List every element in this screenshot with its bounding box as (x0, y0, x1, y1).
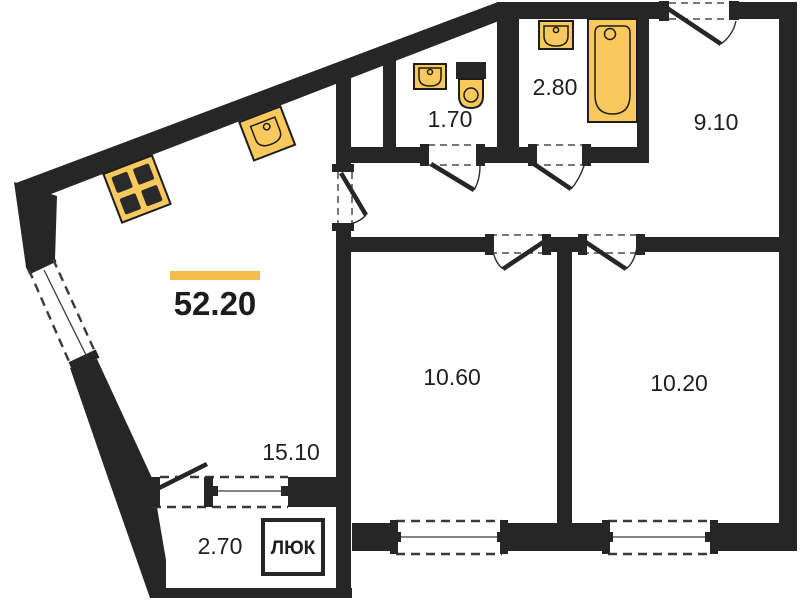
window-nub (394, 532, 401, 542)
wall-left-upper (14, 182, 57, 267)
window-nub (705, 532, 712, 542)
door-jamb (636, 234, 645, 255)
bathroom-door-leaf (534, 164, 571, 189)
door-jamb (729, 1, 739, 20)
entrance-door (659, 1, 739, 44)
toilet-tank (456, 62, 486, 79)
wall-bedrooms-top-3 (640, 237, 779, 252)
door-swing-arc (721, 21, 736, 44)
wall-bottom-middle (502, 523, 608, 551)
toilet-icon (456, 62, 486, 108)
bedroom-2-door-leaf (584, 241, 626, 269)
bathroom-door (528, 144, 591, 189)
door-jamb (332, 164, 354, 172)
window-living-left (26, 254, 100, 371)
hatch-label: ЛЮК (271, 538, 316, 559)
hatch: ЛЮК (263, 520, 323, 574)
floorplan-page: ЛЮК 52.20 15.10 10.60 10.20 9.10 2.80 1.… (0, 0, 801, 600)
room-area-label-hallway: 9.10 (694, 109, 739, 135)
bath-sink-icon (539, 21, 573, 49)
door-jamb (476, 144, 485, 166)
window-nub (497, 532, 504, 542)
wall-wcbath-bottom-3 (585, 147, 649, 163)
wall-bottom-right (712, 523, 797, 551)
door-jamb (420, 144, 429, 166)
door-swing-arc (626, 246, 637, 269)
wall-top-diagonal (16, 2, 504, 201)
window-nub (281, 486, 288, 496)
wall-top-left-of-entrance (497, 2, 663, 19)
balcony-door-window (150, 464, 288, 507)
wall-central-lower (336, 223, 351, 598)
entrance-door-leaf (664, 6, 721, 44)
bedroom-2-door (578, 234, 645, 269)
bedroom-1-door (485, 234, 551, 269)
bathtub-icon (588, 19, 637, 122)
wall-bath-right (637, 19, 649, 163)
wall-bedrooms-top-1 (351, 237, 490, 252)
room-area-label-bathroom: 2.80 (533, 74, 578, 100)
total-area-label: 52.20 (174, 285, 257, 322)
wall-wcbath-bottom-1 (345, 147, 428, 163)
wall-wc-bath-divider (497, 19, 519, 147)
wall-bottom-left (352, 523, 396, 551)
door-jamb (582, 144, 591, 166)
living-room-door-leaf (341, 173, 366, 215)
wall-bedroom-divider (557, 252, 572, 523)
wc-sink-icon (414, 64, 446, 89)
door-hinge-block (150, 477, 160, 507)
wall-wcbath-bottom-2 (480, 147, 532, 163)
window-bedroom-1 (390, 520, 508, 554)
wall-right (779, 2, 797, 551)
window-nub (606, 532, 613, 542)
room-area-label-wc: 1.70 (428, 106, 473, 132)
total-area-accent-bar (170, 271, 260, 280)
wall-balcony-bottom (155, 588, 352, 598)
wall-balcony-top-chunk (288, 477, 336, 507)
floorplan-drawing: ЛЮК 52.20 15.10 10.60 10.20 9.10 2.80 1.… (0, 0, 801, 600)
window-glass (44, 270, 87, 357)
room-area-label-bedroom-2: 10.20 (650, 370, 708, 396)
room-area-label-balcony: 2.70 (198, 533, 243, 559)
room-area-label-kitchen-living: 15.10 (262, 439, 320, 465)
door-swing-arc (571, 166, 584, 189)
window-bedroom-2 (602, 520, 718, 554)
room-area-label-bedroom-1: 10.60 (423, 364, 481, 390)
wall-bedrooms-top-2 (547, 237, 582, 252)
wc-door (420, 144, 485, 190)
window-nub (211, 486, 218, 496)
bedroom-1-door-leaf (503, 241, 545, 269)
outer-walls (14, 2, 797, 598)
interior-walls (288, 19, 779, 598)
wc-door-leaf (431, 164, 474, 190)
wall-wc-left (383, 50, 396, 147)
window-dash (29, 270, 71, 366)
living-room-door (332, 164, 366, 231)
toilet-bowl (459, 79, 483, 108)
door-swing-arc (474, 166, 480, 190)
